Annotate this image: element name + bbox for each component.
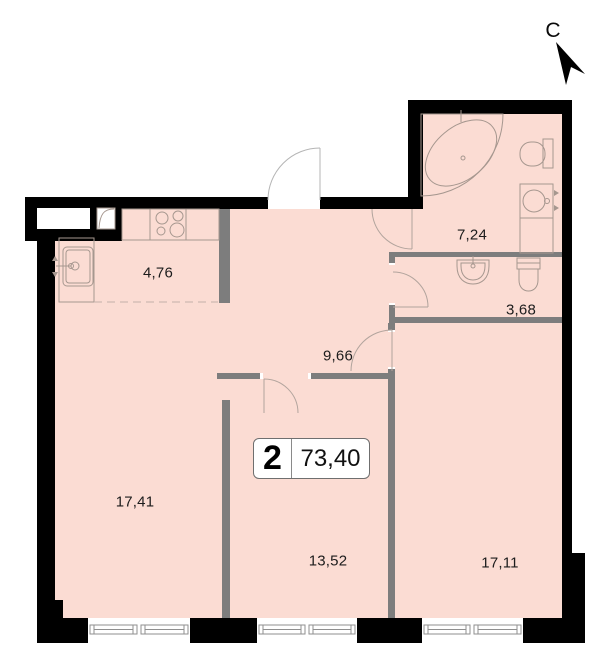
north-arrow-icon <box>556 42 585 85</box>
badge-room-count: 2 <box>254 439 292 478</box>
floor-plan-drawing <box>0 0 612 669</box>
room-label-living: 17,41 <box>116 494 155 511</box>
apartment-badge: 2 73,40 <box>253 438 370 479</box>
floor-plan: 4,76 7,24 3,68 9,66 17,41 13,52 17,11 С … <box>0 0 612 669</box>
room-label-hallway: 9,66 <box>323 348 353 365</box>
north-label: С <box>545 19 560 43</box>
room-label-bathroom: 7,24 <box>457 227 487 244</box>
room-label-wc: 3,68 <box>506 302 536 319</box>
duct-shaft <box>37 208 115 229</box>
room-label-kitchen: 4,76 <box>143 265 173 282</box>
entrance-door <box>268 148 320 200</box>
room-label-bedroom2: 17,11 <box>481 555 518 572</box>
room-label-bedroom: 13,52 <box>309 553 348 570</box>
floor-areas <box>55 114 562 618</box>
windows <box>88 618 523 643</box>
badge-total-area: 73,40 <box>292 439 369 478</box>
